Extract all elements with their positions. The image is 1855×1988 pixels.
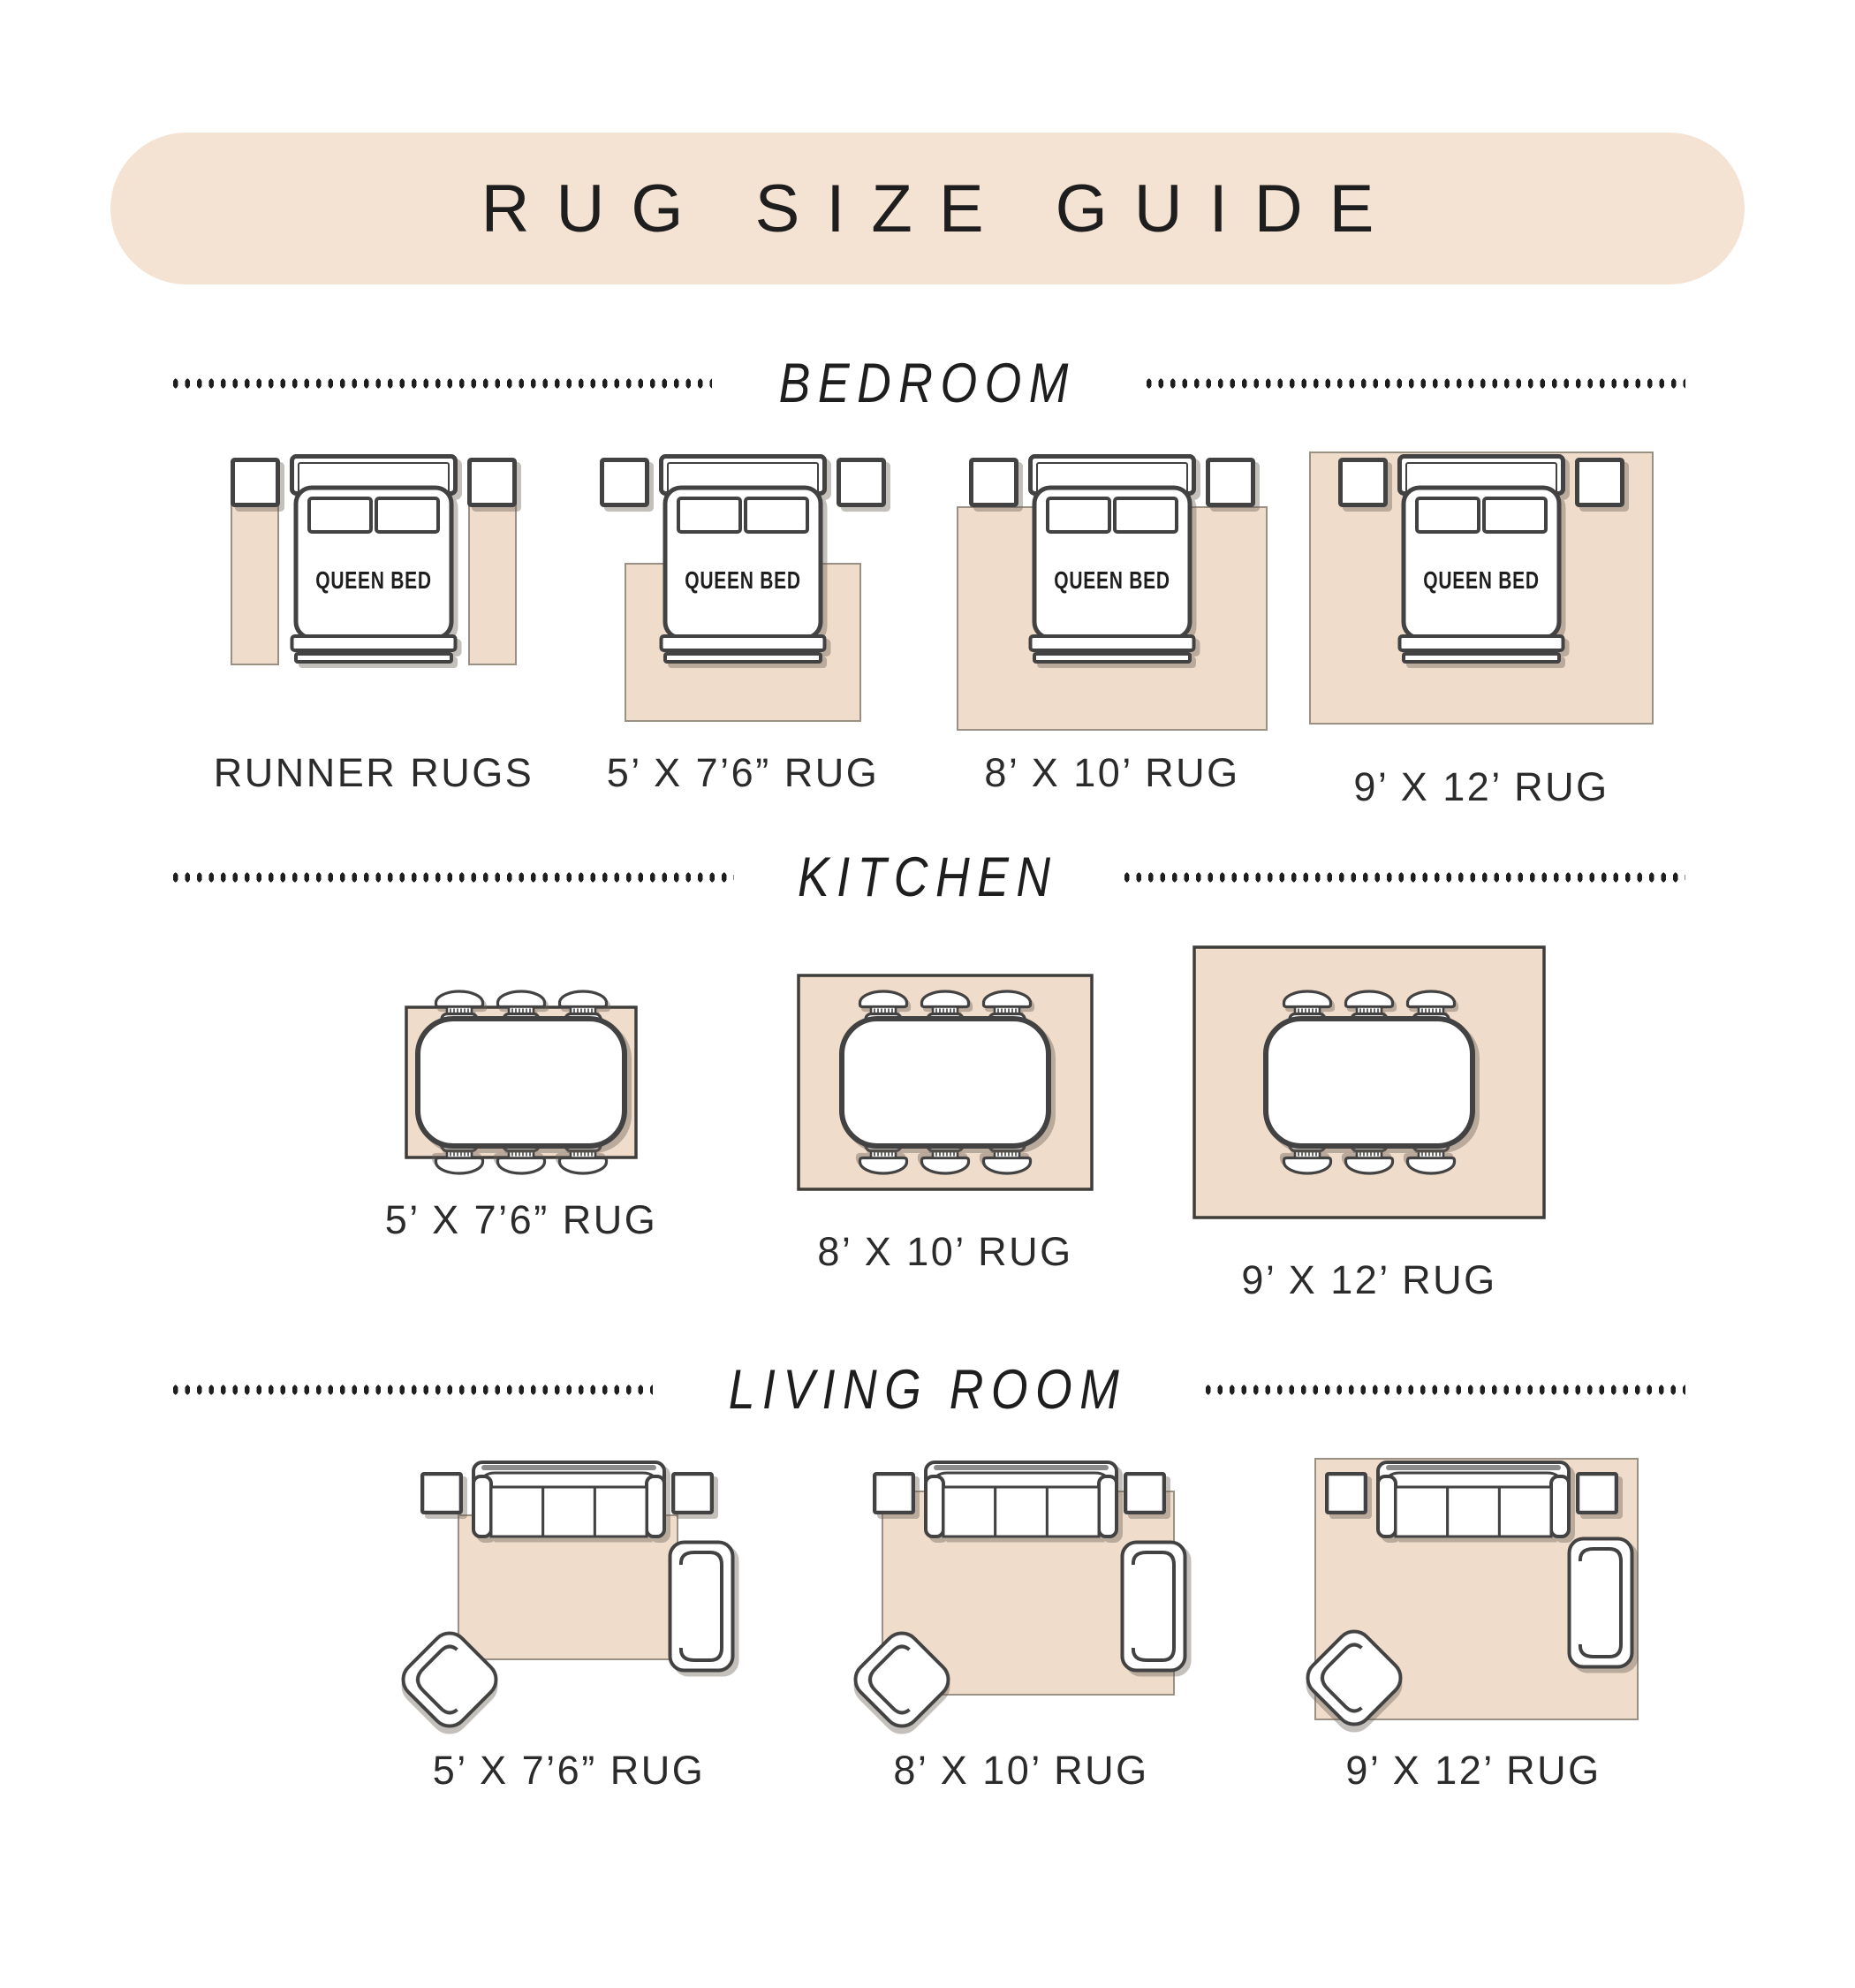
- dotted-line-right: [1143, 376, 1685, 391]
- section-title-bedroom: BEDROOM: [753, 352, 1102, 415]
- end-table-left: [422, 1474, 461, 1513]
- rug-size-label: 5’ X 7’6” RUG: [433, 1748, 705, 1794]
- bedroom-diagram-row: RUNNER RUGS 5’ X 7’6” RUG 8’ X: [0, 445, 1855, 810]
- rug-size-label: 8’ X 10’ RUG: [984, 750, 1239, 796]
- queen-bed: [662, 457, 825, 663]
- nightstand-right: [1578, 460, 1623, 505]
- diagram-living-9x12-rug: 9’ X 12’ RUG: [1297, 1448, 1650, 1794]
- dotted-line-right: [1202, 1383, 1685, 1397]
- nightstand-left: [602, 460, 647, 505]
- dining-table: [1266, 1019, 1473, 1146]
- rug-size-label: 5’ X 7’6” RUG: [385, 1197, 657, 1243]
- section-title-text: KITCHEN: [798, 846, 1058, 909]
- nightstand-right: [839, 460, 884, 505]
- dining-table: [842, 1019, 1049, 1146]
- section-bedroom: BEDROOM RUNNER RUGS: [0, 352, 1855, 810]
- diagram-kitchen-5x76-rug: 5’ X 7’6” RUG: [336, 932, 707, 1243]
- rug-size-label: 8’ X 10’ RUG: [817, 1229, 1072, 1275]
- rug-size-label: 9’ X 12’ RUG: [1353, 764, 1609, 810]
- diagram-bedroom-9x12-rug: 9’ X 12’ RUG: [1305, 445, 1658, 810]
- bedroom-8x10-drawing: [935, 445, 1289, 741]
- dining-table: [418, 1019, 625, 1146]
- bedroom-5x76-drawing: [566, 445, 920, 741]
- nightstand-right: [470, 460, 515, 505]
- end-table-left: [874, 1474, 913, 1513]
- section-kitchen: KITCHEN 5’ X 7’6” RUG: [0, 846, 1855, 1303]
- kitchen-5x76-drawing: [336, 932, 707, 1233]
- kitchen-8x10-drawing: [760, 932, 1131, 1233]
- diagram-kitchen-9x12-rug: 9’ X 12’ RUG: [1184, 932, 1555, 1303]
- nightstand-left: [233, 460, 278, 505]
- rug-size-label: 9’ X 12’ RUG: [1241, 1257, 1496, 1303]
- living-room-header: LIVING ROOM: [0, 1358, 1855, 1422]
- queen-bed: [1400, 457, 1563, 663]
- rug-size-label: 8’ X 10’ RUG: [893, 1748, 1148, 1794]
- diagram-bedroom-8x10-rug: 8’ X 10’ RUG: [935, 445, 1289, 796]
- nightstand-right: [1208, 460, 1253, 505]
- rug-size-label: 5’ X 7’6” RUG: [607, 750, 879, 796]
- bedroom-header: BEDROOM: [0, 352, 1855, 415]
- nightstand-left: [1341, 460, 1386, 505]
- kitchen-header: KITCHEN: [0, 846, 1855, 909]
- section-title-kitchen: KITCHEN: [775, 846, 1081, 909]
- living-9x12-drawing: [1297, 1448, 1650, 1744]
- kitchen-diagram-row: 5’ X 7’6” RUG 8’ X 10’ RUG: [18, 932, 1855, 1303]
- page-title: RUG SIZE GUIDE: [455, 171, 1401, 247]
- section-title-living-room: LIVING ROOM: [693, 1358, 1162, 1422]
- queen-bed: [292, 457, 456, 663]
- dotted-line-left: [170, 376, 712, 391]
- sofa: [1378, 1462, 1569, 1537]
- title-banner: RUG SIZE GUIDE: [110, 133, 1745, 285]
- sofa: [473, 1462, 664, 1537]
- section-title-text: LIVING ROOM: [729, 1358, 1127, 1422]
- bedroom-9x12-drawing: [1305, 445, 1658, 741]
- diagram-kitchen-8x10-rug: 8’ X 10’ RUG: [760, 932, 1131, 1275]
- living-5x76-drawing: [392, 1448, 746, 1744]
- dotted-line-left: [170, 870, 734, 884]
- end-table-right: [673, 1474, 712, 1513]
- bedroom-runner-drawing: [197, 445, 550, 741]
- dotted-line-left: [170, 1383, 653, 1397]
- diagram-living-8x10-rug: 8’ X 10’ RUG: [844, 1448, 1198, 1794]
- rug-size-guide-page: RUG SIZE GUIDE BEDROOM RUNNER RUGS: [0, 133, 1855, 1988]
- sofa: [926, 1462, 1117, 1537]
- nightstand-left: [972, 460, 1017, 505]
- end-table-right: [1578, 1474, 1616, 1513]
- section-title-text: BEDROOM: [779, 352, 1076, 415]
- section-living-room: LIVING ROOM 5’ X 7’6” RUG: [0, 1358, 1855, 1794]
- dotted-line-right: [1121, 870, 1685, 884]
- end-table-left: [1327, 1474, 1366, 1513]
- runner-rug-left: [231, 502, 278, 664]
- diagram-bedroom-runner-rugs: RUNNER RUGS: [197, 445, 550, 796]
- living-8x10-drawing: [844, 1448, 1198, 1744]
- queen-bed: [1031, 457, 1194, 663]
- chaise-lounge: [1570, 1539, 1632, 1667]
- chaise-lounge: [670, 1543, 733, 1671]
- kitchen-9x12-drawing: [1184, 932, 1555, 1233]
- living-room-diagram-row: 5’ X 7’6” RUG 8’ X 10’ RUG: [94, 1448, 1855, 1794]
- diagram-living-5x76-rug: 5’ X 7’6” RUG: [392, 1448, 746, 1794]
- rug-size-label: RUNNER RUGS: [214, 750, 534, 796]
- chaise-lounge: [1123, 1543, 1185, 1671]
- rug-size-label: 9’ X 12’ RUG: [1345, 1748, 1601, 1794]
- runner-rug-right: [469, 502, 516, 664]
- end-table-right: [1125, 1474, 1164, 1513]
- diagram-bedroom-5x76-rug: 5’ X 7’6” RUG: [566, 445, 920, 796]
